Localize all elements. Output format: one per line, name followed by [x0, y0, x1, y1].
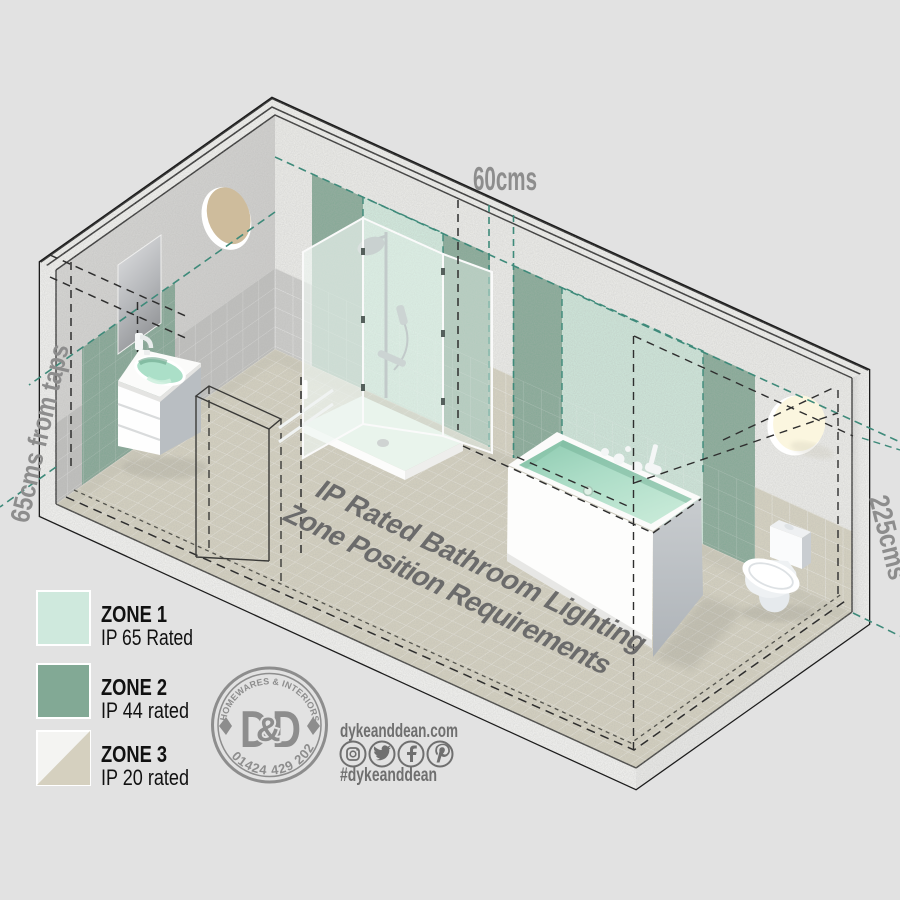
svg-text:ZONE 3: ZONE 3 [101, 741, 167, 767]
svg-text:IP 65 Rated: IP 65 Rated [101, 625, 193, 650]
svg-text:dykeanddean.com: dykeanddean.com [340, 721, 458, 742]
svg-text:IP 20 rated: IP 20 rated [101, 765, 189, 790]
svg-text:ZONE 2: ZONE 2 [101, 674, 167, 700]
svg-text:&: & [256, 711, 281, 749]
svg-text:60cms: 60cms [473, 160, 537, 197]
svg-text:ZONE 1: ZONE 1 [101, 601, 167, 627]
svg-text:#dykeanddean: #dykeanddean [340, 765, 437, 786]
svg-text:IP 44 rated: IP 44 rated [101, 698, 189, 723]
